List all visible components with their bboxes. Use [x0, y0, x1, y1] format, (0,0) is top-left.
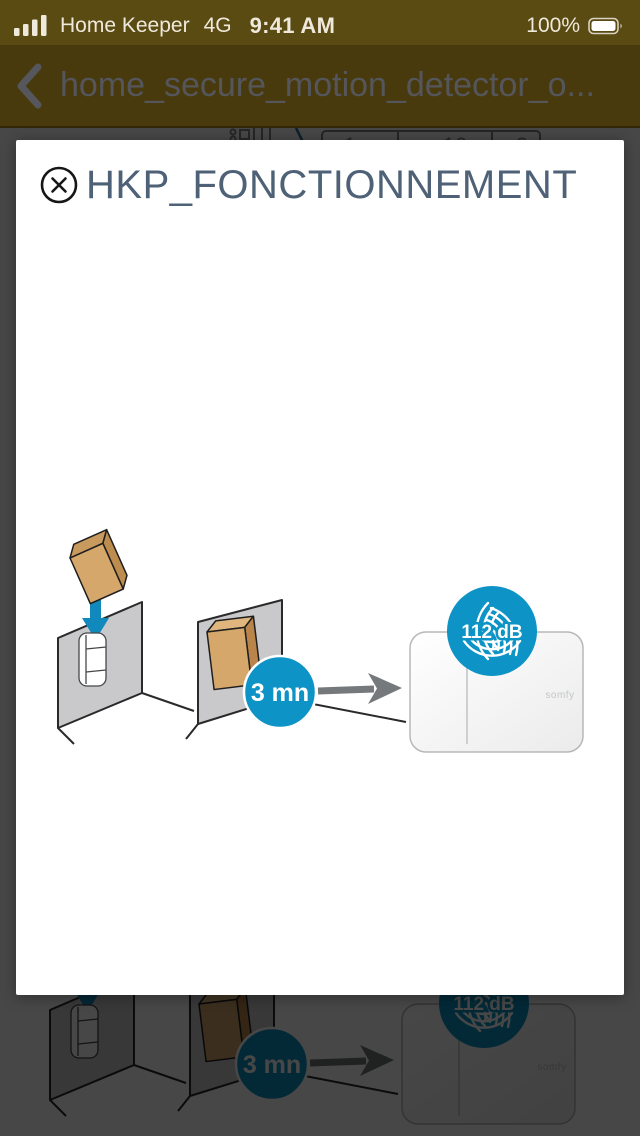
- battery-icon: [588, 17, 626, 35]
- somfy-logo: somfy: [545, 690, 574, 701]
- status-bar: Home Keeper 4G 9:41 AM 100%: [0, 0, 640, 45]
- carrier-label: Home Keeper: [60, 14, 190, 38]
- volume-label: 112 dB: [461, 622, 522, 643]
- modal-title: HKP_FONCTIONNEMENT: [86, 165, 577, 205]
- signal-icon: [14, 14, 52, 38]
- document-title: home_secure_motion_detector_o...: [60, 66, 595, 105]
- battery-percent-label: 100%: [526, 14, 580, 38]
- functioning-illustration: 3 mn somfy: [16, 510, 624, 790]
- package-box: [66, 530, 132, 604]
- flow-arrow-icon: [318, 673, 402, 704]
- navigation-bar: home_secure_motion_detector_o...: [0, 45, 640, 128]
- delay-label: 3 mn: [251, 679, 309, 707]
- phone-screen: 1 12 3 Home Keeper 4G 9:41 AM 100%: [0, 0, 640, 1136]
- back-chevron-icon[interactable]: [14, 62, 44, 110]
- modal-header: HKP_FONCTIONNEMENT: [40, 165, 577, 205]
- delay-badge: 3 mn: [244, 656, 316, 728]
- network-label: 4G: [204, 14, 232, 38]
- time-label: 9:41 AM: [250, 13, 336, 39]
- motion-detector-device: [79, 633, 106, 686]
- close-icon[interactable]: [40, 166, 78, 204]
- volume-badge: 112 dB: [447, 586, 537, 676]
- modal-card: HKP_FONCTIONNEMENT: [16, 140, 624, 995]
